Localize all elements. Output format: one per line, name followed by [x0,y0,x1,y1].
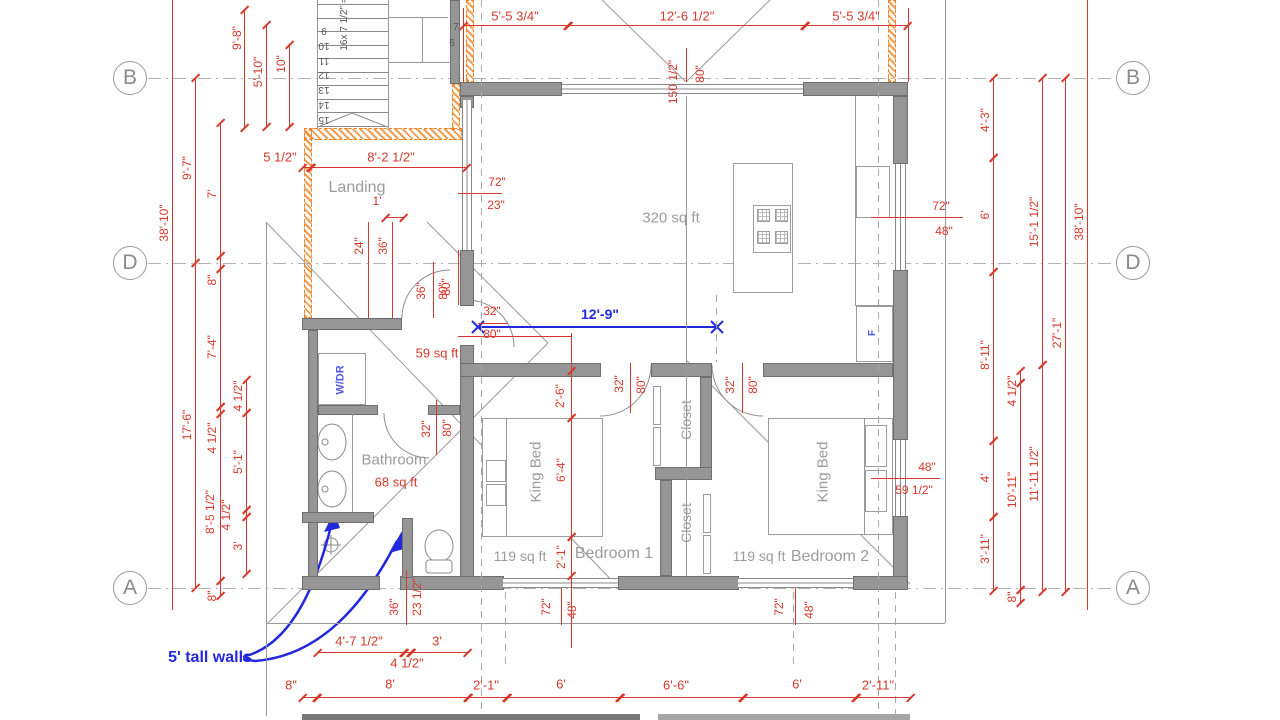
dimension-line [195,78,196,263]
cropped-drawing-edge [302,714,640,720]
plan-vector-overlay [0,0,1280,720]
dimension-label: 80" [635,376,647,394]
extension-dashed-line [481,0,482,716]
dimension-label: 23" [487,199,505,211]
dimension-line [993,441,994,517]
window [503,578,618,588]
dimension-label: 8'-5 1/2" [204,490,216,534]
dimension-label: 8" [1006,592,1018,603]
oven-icon [856,166,890,218]
dimension-label: 80" [483,328,501,340]
wall-segment [302,512,374,523]
dimension-label: 80" [694,65,706,83]
dimension-label: 6'-6" [663,679,689,692]
furniture-label-king-bed: King Bed [529,442,544,503]
room-area-label: 320 sq ft [642,211,700,226]
grid-marker-letter: A [1126,576,1140,600]
dimension-line [856,697,911,698]
dimension-line [742,363,743,413]
dimension-line [246,380,247,413]
closet-door-panel-icon [703,535,711,574]
dimension-label: 4 1/2" [390,657,424,670]
dimension-label: 6' [792,678,802,691]
dimension-line [368,222,369,318]
dimension-label: 15'-1 1/2" [1028,197,1040,248]
dimension-label: 10" [275,55,287,73]
dimension-line [1065,78,1066,592]
burner-icon [775,209,788,222]
dimension-label: 10'-11" [1006,472,1018,508]
stair-tread-line [317,112,388,113]
dimension-label: 17'-6" [181,410,193,441]
new-wall-segment [466,0,474,82]
dimension-line [220,123,221,256]
grid-marker-letter: D [1125,251,1140,275]
dimension-label: 3' [432,635,442,648]
dimension-label: 9'-7" [181,156,193,180]
dimension-line [686,48,687,82]
outline-line [855,305,893,306]
dimension-line [385,217,404,218]
dimension-label: 32" [724,376,736,394]
dimension-line [1042,365,1043,592]
dimension-label: 7'-4" [206,335,218,359]
wall-segment [460,345,474,577]
dimension-label: 2'-1" [555,545,567,569]
closet-door-panel-icon [653,386,661,425]
floor-plan-canvas[interactable]: BDABDA5'-5 3/4"12'-6 1/2"5'-5 3/4"150 1/… [0,0,1280,720]
dimension-label: 4'-3" [979,108,991,132]
toilet-icon [425,530,453,573]
dimension-label: 4'-7 1/2" [335,635,383,648]
wall-segment [660,480,672,576]
dimension-label: 8'-2 1/2" [367,151,415,164]
stair-direction-arrow [320,113,385,126]
furniture-label-king-bed: King Bed [816,442,831,503]
outline-line [506,419,507,536]
stair-tread-line [317,18,388,19]
dimension-label: 4 1/2" [1006,376,1018,407]
new-wall-segment [452,84,460,130]
window [462,100,472,250]
dimension-label: 38'-10" [1073,203,1085,240]
dimension-line [743,697,856,698]
dimension-line [246,413,247,510]
dimension-label: 32" [483,305,501,317]
dimension-label: 48" [566,601,578,619]
stair-tread-line [317,126,388,127]
dimension-line [571,418,572,537]
grid-marker-letter: D [122,251,137,275]
stair-tread-number: 14 [318,99,329,109]
sink-icons [318,424,346,507]
dimension-line [1087,0,1088,610]
grid-marker-letter: B [123,66,137,90]
outline-line [266,222,267,716]
washer-dryer-label: W/DR [336,365,347,394]
window [738,578,853,588]
room-label-closet: Closet [679,503,693,543]
wall-segment [308,330,318,577]
dimension-label: 80" [441,419,453,437]
dimension-label: 6' [979,211,991,220]
dimension-line [463,25,568,26]
dimension-line [289,45,290,127]
wall-segment [428,405,460,415]
stair-note: 16x 7 1/2" = [340,0,350,51]
new-wall-segment [304,128,312,318]
dimension-line [805,25,908,26]
dimension-line [993,78,994,158]
closet-door-panel-icon [653,427,661,466]
dimension-label: 32" [613,375,625,393]
dimension-label: 48" [803,601,815,619]
dimension-line [1020,590,1021,603]
dimension-line [436,400,437,455]
grid-marker-bubble: A [1116,571,1150,605]
stair-tread-line [317,31,388,32]
wall-segment [618,576,739,590]
wall-segment [460,82,562,96]
outline-line [352,413,353,512]
dimension-line [871,478,940,479]
wall-height-note: 5' tall walls [168,650,252,666]
stair-tread-number: 11 [319,55,329,65]
dimension-label: 59 1/2" [895,484,933,496]
dimension-label: 4 1/2" [206,423,218,454]
grid-marker-bubble: B [1116,61,1150,95]
outline-line [388,17,448,18]
grid-marker-letter: B [1126,66,1140,90]
pillow-icon [486,460,506,482]
outline-line [945,0,946,623]
closet-door-panel-icon [703,494,711,533]
grid-marker-bubble: B [113,61,147,95]
wall-segment [700,377,712,480]
dimension-line [571,333,572,371]
dimension-label: 5'-1" [232,450,244,474]
fridge-label: F [868,330,878,336]
room-label-closet: Closet [679,400,693,440]
stair-tread-line [317,4,388,5]
dimension-label: 11'-11 1/2" [1028,446,1040,501]
dimension-line [246,517,247,574]
wall-segment [302,318,402,330]
dimension-line [195,263,196,588]
dimension-label: 9'-8" [231,26,243,50]
dimension-label: 36" [377,237,389,255]
outline-line [388,62,460,63]
grid-marker-bubble: A [113,571,147,605]
wall-segment [803,82,908,96]
outline-line [864,419,865,534]
burner-icon [775,231,788,244]
dimension-label: 5 1/2" [263,151,297,164]
dimension-label: 24" [353,237,365,255]
pillow-icon [865,425,887,467]
grid-reference-line [148,78,1115,79]
room-area-label: 59 sq ft [416,347,459,360]
dimension-label: 48" [935,225,953,237]
extension-dashed-line [505,592,506,670]
dimension-line [220,269,221,407]
extension-dashed-line [878,0,879,716]
dimension-label: 7' [206,190,218,199]
dimension-line [620,697,743,698]
dimension-line [993,517,994,591]
dimension-line [311,167,467,168]
dimension-line [568,25,805,26]
dimension-label: 150 1/2" [667,60,679,104]
outline-line [317,0,318,130]
burner-icon [757,231,770,244]
new-wall-segment [888,0,896,82]
wall-segment [893,270,908,440]
grid-marker-letter: A [123,576,137,600]
dimension-line [317,697,468,698]
grid-marker-bubble: D [1116,246,1150,280]
blue-dimension-label: 12'-9" [581,307,619,321]
dimension-line [458,193,502,194]
wall-segment [302,576,380,590]
dimension-line [795,588,796,625]
dimension-label: 80" [440,278,452,296]
wall-segment [318,405,378,415]
pillow-icon [865,470,887,512]
dimension-line [571,371,572,418]
dimension-label: 12'-6 1/2" [660,10,715,23]
room-area-label: 119 sq ft [494,549,547,563]
extension-dashed-line [793,592,794,670]
grid-reference-line [148,263,1115,264]
new-wall-segment [304,128,462,140]
stair-tread-number: 15 [318,114,329,124]
dimension-label: 72" [932,200,950,212]
dimension-label: 72" [540,598,552,616]
dimension-line [244,10,245,128]
dimension-line [458,250,459,305]
dimension-line [1042,78,1043,365]
outline-line [855,96,856,305]
dimension-line [266,25,267,127]
burner-icon [757,209,770,222]
pillow-icon [486,484,506,506]
dimension-line [468,697,507,698]
winder-number: 6 [449,39,455,49]
dimension-line [317,652,404,653]
dimension-line [993,158,994,272]
dimension-line [630,363,631,413]
dimension-label: 23 1/2" [411,578,423,616]
dimension-label: 8" [206,275,218,286]
room-label-bedroom-2: Bedroom 2 [791,549,869,565]
dimension-label: 36" [415,282,427,300]
dimension-line [411,652,468,653]
dimension-line [1020,383,1021,590]
stair-tread-number: 10 [318,40,329,50]
dimension-line [561,588,562,625]
dimension-label: 3' [232,542,244,551]
dimension-label: 72" [488,176,506,188]
dimension-line [463,8,464,82]
dimension-line [571,537,572,576]
dimension-label: 2'-6" [554,384,566,408]
dimension-label: 6' [556,678,566,691]
dimension-label: 1' [373,195,382,207]
winder-number: 7 [453,23,459,33]
dimension-line [993,272,994,441]
dimension-line [406,570,407,625]
wall-segment [655,467,712,480]
window [562,84,803,94]
dimension-label: 8' [385,678,395,691]
dimension-line [172,0,173,610]
dimension-label: 72" [773,598,785,616]
dimension-line [507,697,620,698]
dimension-line [220,414,221,581]
stair-tread-number: 9 [321,25,327,35]
dimension-label: 6'-4" [555,458,567,482]
dimension-label: 5'-5 3/4" [491,10,539,23]
dimension-label: 8" [285,679,297,692]
dimension-label: 4' [979,474,991,483]
dimension-label: 5'-10" [252,57,264,88]
dimension-line [433,262,434,318]
wall-segment [763,363,893,377]
wall-segment [651,363,712,377]
dimension-line [458,336,571,337]
grid-marker-bubble: D [113,246,147,280]
room-area-label: 119 sq ft [733,549,786,563]
dimension-label: 4 1/2" [232,381,244,412]
dimension-line [478,323,508,324]
wall-segment [893,96,908,164]
outline-line [422,17,423,62]
wall-segment [460,250,474,306]
dimension-label: 80" [747,376,759,394]
dimension-line [908,8,909,82]
dimension-label: 8'-11" [979,340,991,370]
dimension-line [220,581,221,596]
dimension-label: 2'-11" [862,679,894,692]
stair-tread-number: 12 [318,69,329,79]
room-label-bathroom: Bathroom [361,453,426,468]
dimension-label: 27'-1" [1051,318,1063,349]
dimension-label: 5'-5 3/4" [832,10,880,23]
stair-tread-number: 13 [318,84,329,94]
dimension-label: 3'-11" [979,534,991,564]
dimension-label: 38'-10" [158,204,170,241]
dimension-label: 48" [918,461,936,473]
dimension-line [392,222,393,318]
wall-segment [402,518,413,578]
dimension-line [871,217,963,218]
dimension-label: 4 1/2" [220,500,232,531]
outline-line [266,623,945,624]
wall-segment [853,576,908,590]
dimension-label: 8" [206,591,218,602]
dimension-label: 36" [388,598,400,616]
room-label-bedroom-1: Bedroom 1 [575,546,653,562]
outline-line [388,0,389,130]
room-area-label: 68 sq ft [375,476,418,489]
extension-dashed-line [716,295,717,362]
dimension-label: 2'-1" [473,679,499,692]
cropped-drawing-edge [658,714,910,720]
dimension-label: 32" [420,420,432,438]
